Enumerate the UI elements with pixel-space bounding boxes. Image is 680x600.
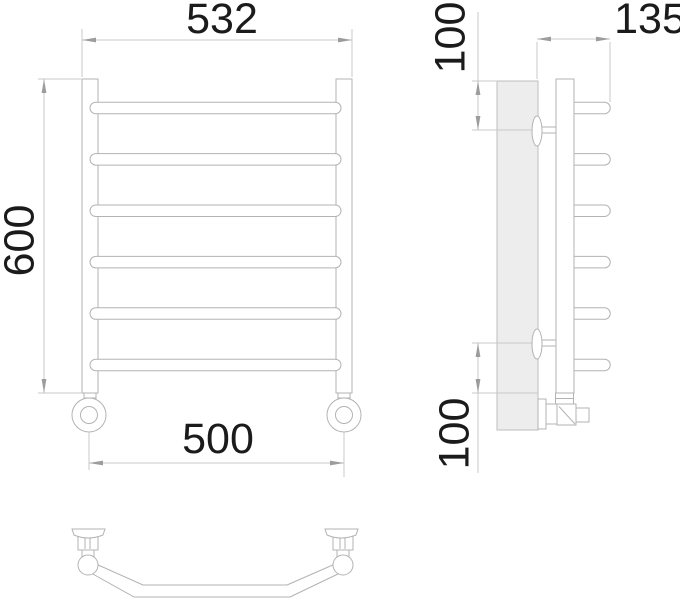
arrow-up-icon <box>42 79 47 93</box>
dimension-label-overall-width: 532 <box>162 0 282 41</box>
arrow-up-icon <box>476 343 481 357</box>
front-rung-4 <box>90 256 341 268</box>
arrow-left-icon <box>82 38 96 43</box>
dimension-label-overall-height: 600 <box>0 181 42 301</box>
valve-assembly <box>538 393 589 429</box>
front-rung-6 <box>90 359 341 371</box>
arrow-up-icon <box>476 81 481 95</box>
technical-drawing: 532 600 500 100 135 100 <box>0 0 680 600</box>
left-anchor-cap <box>72 529 105 538</box>
bottom-view <box>72 529 358 597</box>
left-anchor-ball <box>78 555 98 575</box>
arrow-down-icon <box>476 116 481 130</box>
side-rung-1 <box>574 102 610 114</box>
side-view <box>497 79 610 430</box>
front-rung-2 <box>90 154 341 166</box>
arrow-left-icon <box>537 37 551 42</box>
valve-bridge <box>546 404 557 424</box>
side-rung-5 <box>574 308 610 320</box>
dimension-label-wall-clearance: 135 <box>590 0 680 41</box>
arrow-right-icon <box>338 38 352 43</box>
valve-wall-flange <box>538 399 546 429</box>
drawing-canvas <box>0 0 680 600</box>
arrow-left-icon <box>89 461 103 466</box>
front-rung-1 <box>90 102 341 114</box>
side-rung-6 <box>574 359 610 371</box>
side-rung-4 <box>574 256 610 268</box>
front-right-post <box>336 79 352 393</box>
dimension-label-bottom-bracket-offset: 100 <box>434 374 477 494</box>
top-bracket-flange <box>532 116 542 146</box>
front-view <box>72 79 361 432</box>
front-rung-5 <box>90 308 341 320</box>
side-rung-3 <box>574 205 610 217</box>
valve-outlet-pipe <box>576 408 589 422</box>
bowed-rail-band <box>91 564 340 597</box>
right-anchor-ball <box>333 555 353 575</box>
arrow-down-icon <box>42 379 47 393</box>
front-right-mount-flange <box>327 398 361 432</box>
front-left-mount-flange <box>72 398 106 432</box>
dim-600 <box>38 79 82 393</box>
dimension-label-top-bracket-offset: 100 <box>430 0 473 98</box>
front-left-post <box>82 79 98 393</box>
side-post <box>556 79 574 393</box>
arrow-right-icon <box>330 461 344 466</box>
dimension-label-mounting-centers: 500 <box>158 418 278 461</box>
side-rung-2 <box>574 154 610 166</box>
front-rung-3 <box>90 205 341 217</box>
bottom-bracket-flange <box>532 329 542 359</box>
